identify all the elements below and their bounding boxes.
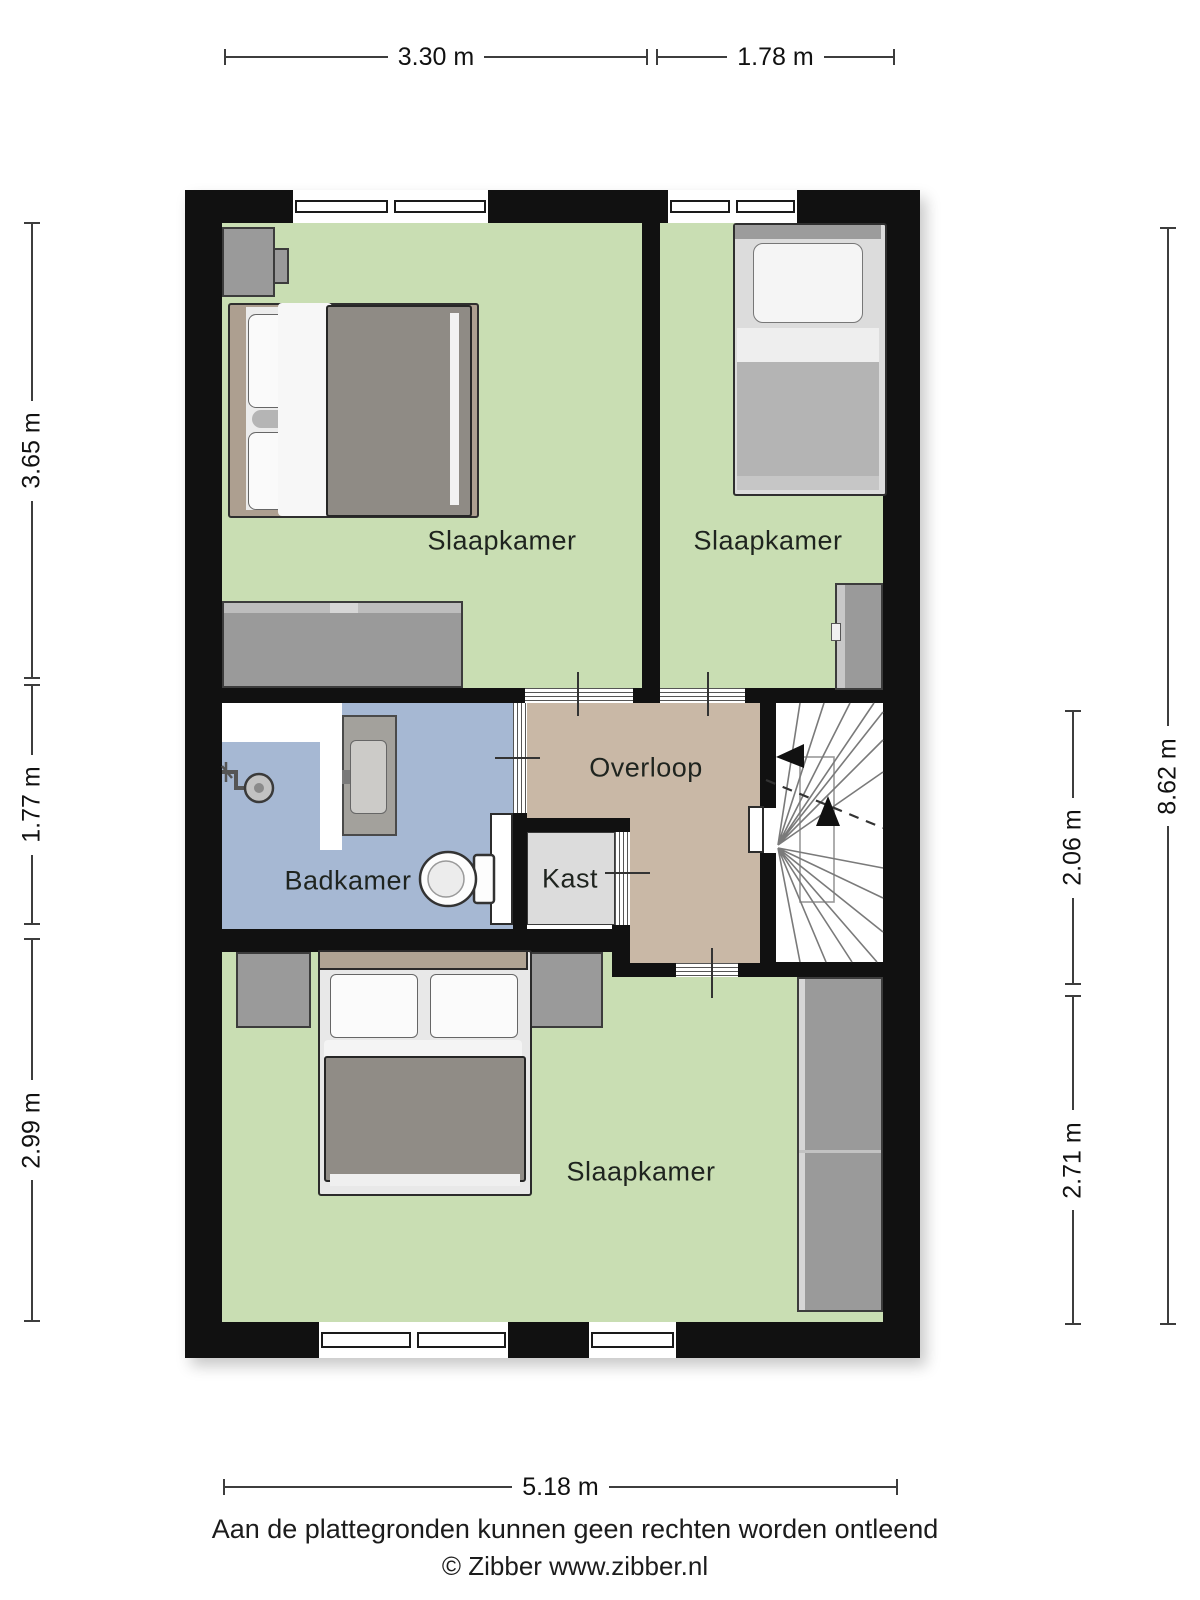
room-label-slaapkamer-2: Slaapkamer <box>693 526 842 557</box>
toilet-icon <box>420 852 494 906</box>
footer: Aan de plattegronden kunnen geen rechten… <box>0 1514 1150 1582</box>
stairs <box>766 703 883 962</box>
room-label-badkamer: Badkamer <box>284 866 411 897</box>
footer-disclaimer: Aan de plattegronden kunnen geen rechten… <box>0 1514 1150 1545</box>
stairs-arrow-up <box>816 796 840 826</box>
plan-symbols-layer <box>0 0 1200 1600</box>
door-tick-marks <box>495 672 712 998</box>
room-label-kast: Kast <box>542 864 598 895</box>
room-label-overloop: Overloop <box>589 753 703 784</box>
room-label-slaapkamer-3: Slaapkamer <box>566 1157 715 1188</box>
room-label-slaapkamer-1: Slaapkamer <box>427 526 576 557</box>
footer-copyright: © Zibber www.zibber.nl <box>0 1551 1150 1582</box>
floorplan-canvas: 3.30 m 1.78 m 5.18 m 3.65 m 1.77 m 2.99 … <box>0 0 1200 1600</box>
shower-head-icon <box>222 762 273 802</box>
